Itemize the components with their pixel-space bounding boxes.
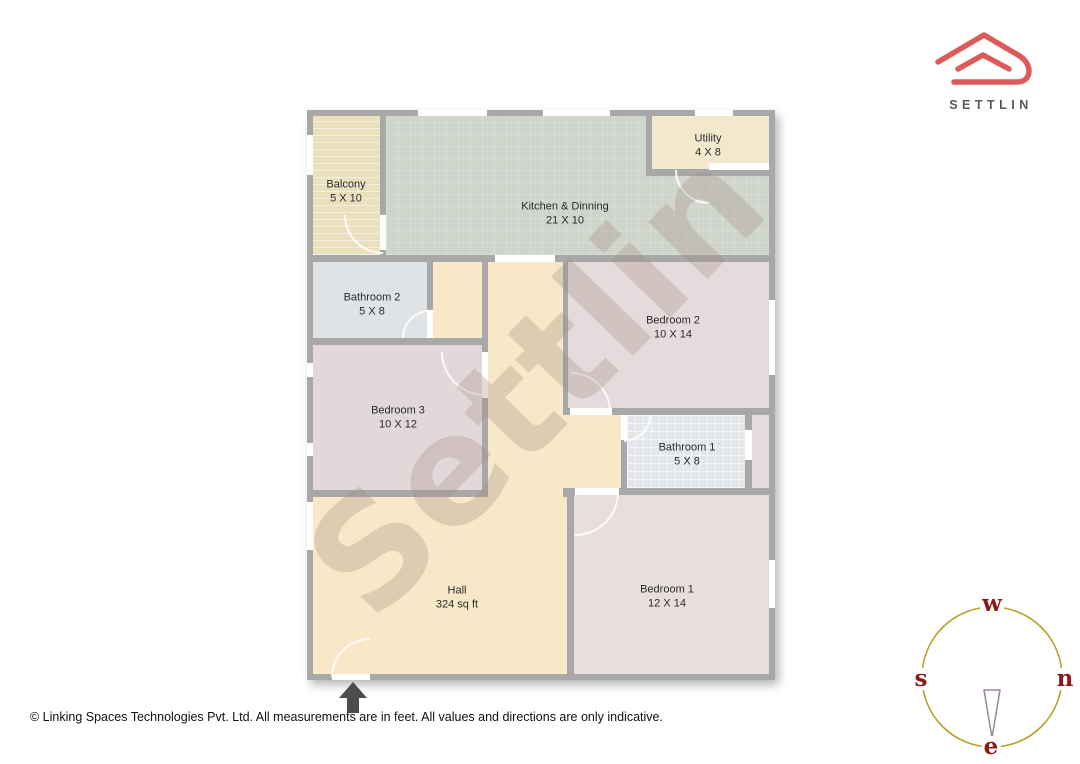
room-label-bedroom1: Bedroom 112 X 14 xyxy=(640,584,694,611)
room-name: Bathroom 2 xyxy=(344,292,401,304)
room-name: Kitchen & Dinning xyxy=(521,201,608,213)
room-name: Utility xyxy=(695,133,722,145)
room-dims: 4 X 8 xyxy=(695,146,721,158)
room-name: Balcony xyxy=(326,179,365,191)
floor-plan: Settlin Balcony5 X 10 Kitchen & Dinning2… xyxy=(307,110,775,680)
compass-letter-west: w xyxy=(980,593,1004,615)
room-label-bedroom3: Bedroom 310 X 12 xyxy=(371,405,425,432)
room-dims: 324 sq ft xyxy=(436,598,478,610)
compass-letter-east: e xyxy=(982,736,1001,758)
room-label-bathroom2: Bathroom 25 X 8 xyxy=(344,292,401,319)
room-dims: 5 X 10 xyxy=(330,192,362,204)
compass-letter-north: n xyxy=(1055,668,1076,690)
room-dims: 10 X 14 xyxy=(654,328,692,340)
compass-needle-icon xyxy=(984,690,1000,738)
settlin-roof-icon xyxy=(925,24,1057,94)
settlin-logo: SETTLIN xyxy=(925,24,1057,116)
room-label-utility: Utility4 X 8 xyxy=(695,133,722,160)
room-name: Bathroom 1 xyxy=(659,442,716,454)
entrance-arrow-icon xyxy=(337,680,369,714)
compass-letter-south: s xyxy=(913,668,930,690)
room-name: Bedroom 1 xyxy=(640,584,694,596)
room-dims: 10 X 12 xyxy=(379,418,417,430)
room-name: Hall xyxy=(448,585,467,597)
room-dims: 5 X 8 xyxy=(674,455,700,467)
room-name: Bedroom 2 xyxy=(646,315,700,327)
compass: w s n e xyxy=(905,592,1080,760)
room-label-bedroom2: Bedroom 210 X 14 xyxy=(646,315,700,342)
room-label-bathroom1: Bathroom 15 X 8 xyxy=(659,442,716,469)
settlin-logo-text: SETTLIN xyxy=(925,98,1057,112)
room-dims: 12 X 14 xyxy=(648,597,686,609)
room-label-kitchen: Kitchen & Dinning21 X 10 xyxy=(521,201,608,228)
room-label-balcony: Balcony5 X 10 xyxy=(326,179,365,206)
floor-plan-page: SETTLIN xyxy=(0,0,1080,764)
room-dims: 21 X 10 xyxy=(546,214,584,226)
footer-caption: © Linking Spaces Technologies Pvt. Ltd. … xyxy=(30,710,663,724)
room-label-hall: Hall324 sq ft xyxy=(436,585,478,612)
room-dims: 5 X 8 xyxy=(359,305,385,317)
room-name: Bedroom 3 xyxy=(371,405,425,417)
door-arcs xyxy=(307,110,775,680)
